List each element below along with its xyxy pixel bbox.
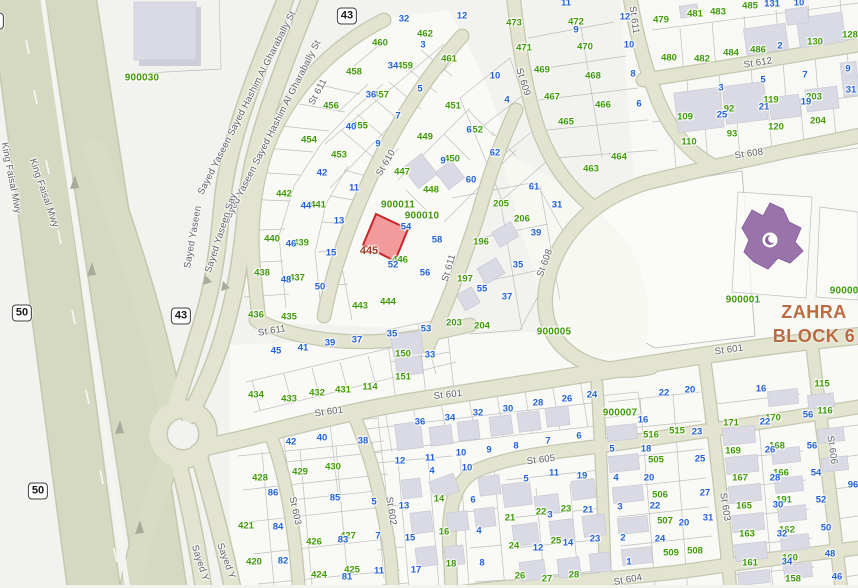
map-canvas[interactable]: 4604624614594584574564554544534514524494… <box>0 0 858 585</box>
block-title: ZAHRA BLOCK 6 <box>758 300 858 348</box>
map-base-layer <box>0 0 858 585</box>
block-title-line2: BLOCK 6 <box>758 324 858 348</box>
block-title-line1: ZAHRA <box>758 300 858 324</box>
roundabout-island <box>170 421 196 447</box>
